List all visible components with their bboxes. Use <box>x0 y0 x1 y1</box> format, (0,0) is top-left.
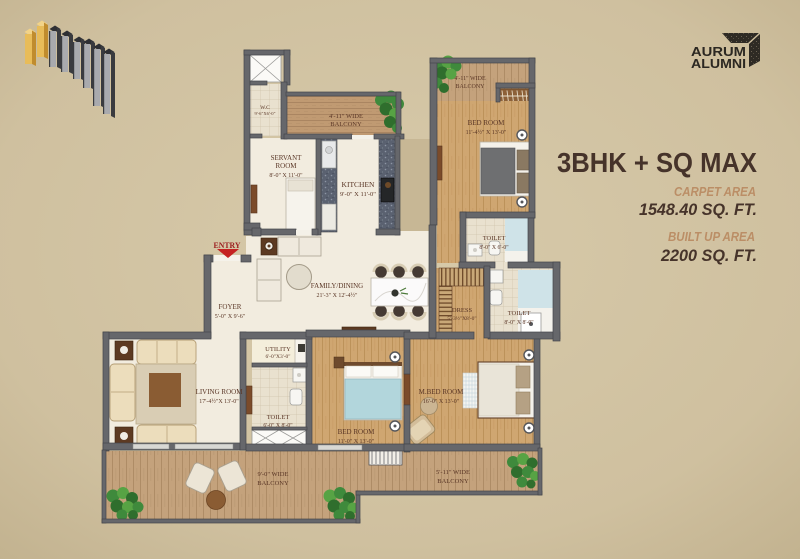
svg-text:LIVING ROOM: LIVING ROOM <box>196 388 244 396</box>
svg-text:3BHK + SQ MAX: 3BHK + SQ MAX <box>557 147 757 178</box>
svg-text:6'-0"X3'-0": 6'-0"X3'-0" <box>265 354 290 360</box>
svg-text:DRESS: DRESS <box>452 307 473 314</box>
svg-text:1548.40 SQ. FT.: 1548.40 SQ. FT. <box>639 200 757 219</box>
svg-text:8'-0" X 8'-0": 8'-0" X 8'-0" <box>504 320 533 326</box>
svg-text:TOILET: TOILET <box>483 235 506 242</box>
svg-text:4'-11" WIDE: 4'-11" WIDE <box>454 76 486 82</box>
svg-text:ENTRY: ENTRY <box>214 240 241 250</box>
svg-text:4'-11" WIDE: 4'-11" WIDE <box>329 113 363 120</box>
svg-text:11'-4½" X 13'-0": 11'-4½" X 13'-0" <box>466 129 507 136</box>
svg-text:BALCONY: BALCONY <box>257 480 289 487</box>
svg-text:KITCHEN: KITCHEN <box>342 180 375 189</box>
svg-text:BALCONY: BALCONY <box>455 84 485 90</box>
svg-text:5'-0" X 9'-6": 5'-0" X 9'-6" <box>215 314 246 320</box>
svg-text:FOYER: FOYER <box>219 303 242 311</box>
svg-text:8'-0" X 11'-0": 8'-0" X 11'-0" <box>269 173 303 179</box>
svg-text:UTILITY: UTILITY <box>265 346 291 353</box>
svg-text:9'-0" X 11'-0": 9'-0" X 11'-0" <box>340 191 376 198</box>
svg-text:BED ROOM: BED ROOM <box>468 119 506 127</box>
svg-text:BALCONY: BALCONY <box>330 121 362 128</box>
svg-text:6'-0" X 8'-0": 6'-0" X 8'-0" <box>263 423 292 429</box>
svg-text:11'-0" X 13'-0": 11'-0" X 13'-0" <box>338 439 375 445</box>
svg-text:BUILT UP AREA: BUILT UP AREA <box>668 230 755 244</box>
svg-text:17'-4½"X 13'-0": 17'-4½"X 13'-0" <box>199 398 239 405</box>
svg-text:M.BED ROOM: M.BED ROOM <box>419 388 465 396</box>
svg-text:5'-3½"X8'-0": 5'-3½"X8'-0" <box>447 315 476 322</box>
svg-text:TOILET: TOILET <box>508 310 531 317</box>
svg-text:16'-0" X 13'-0": 16'-0" X 13'-0" <box>423 399 460 405</box>
svg-text:BALCONY: BALCONY <box>437 478 469 485</box>
svg-text:BED ROOM: BED ROOM <box>338 428 376 436</box>
svg-text:9'-0" WIDE: 9'-0" WIDE <box>258 471 289 478</box>
svg-text:FAMILY/DINING: FAMILY/DINING <box>311 282 363 290</box>
svg-text:ROOM: ROOM <box>275 162 297 170</box>
svg-text:5'-11" WIDE: 5'-11" WIDE <box>436 469 470 476</box>
svg-text:8'-0" X 6'-0": 8'-0" X 6'-0" <box>479 245 508 251</box>
svg-text:9'-6"X6'-0": 9'-6"X6'-0" <box>255 111 276 116</box>
svg-text:2200 SQ. FT.: 2200 SQ. FT. <box>660 246 757 265</box>
svg-text:SERVANT: SERVANT <box>271 154 303 162</box>
svg-text:CARPET AREA: CARPET AREA <box>674 185 756 199</box>
svg-text:ALUMNI: ALUMNI <box>691 56 746 71</box>
svg-text:TOILET: TOILET <box>267 414 290 421</box>
svg-text:21'-3" X 12'-4½": 21'-3" X 12'-4½" <box>317 292 358 299</box>
